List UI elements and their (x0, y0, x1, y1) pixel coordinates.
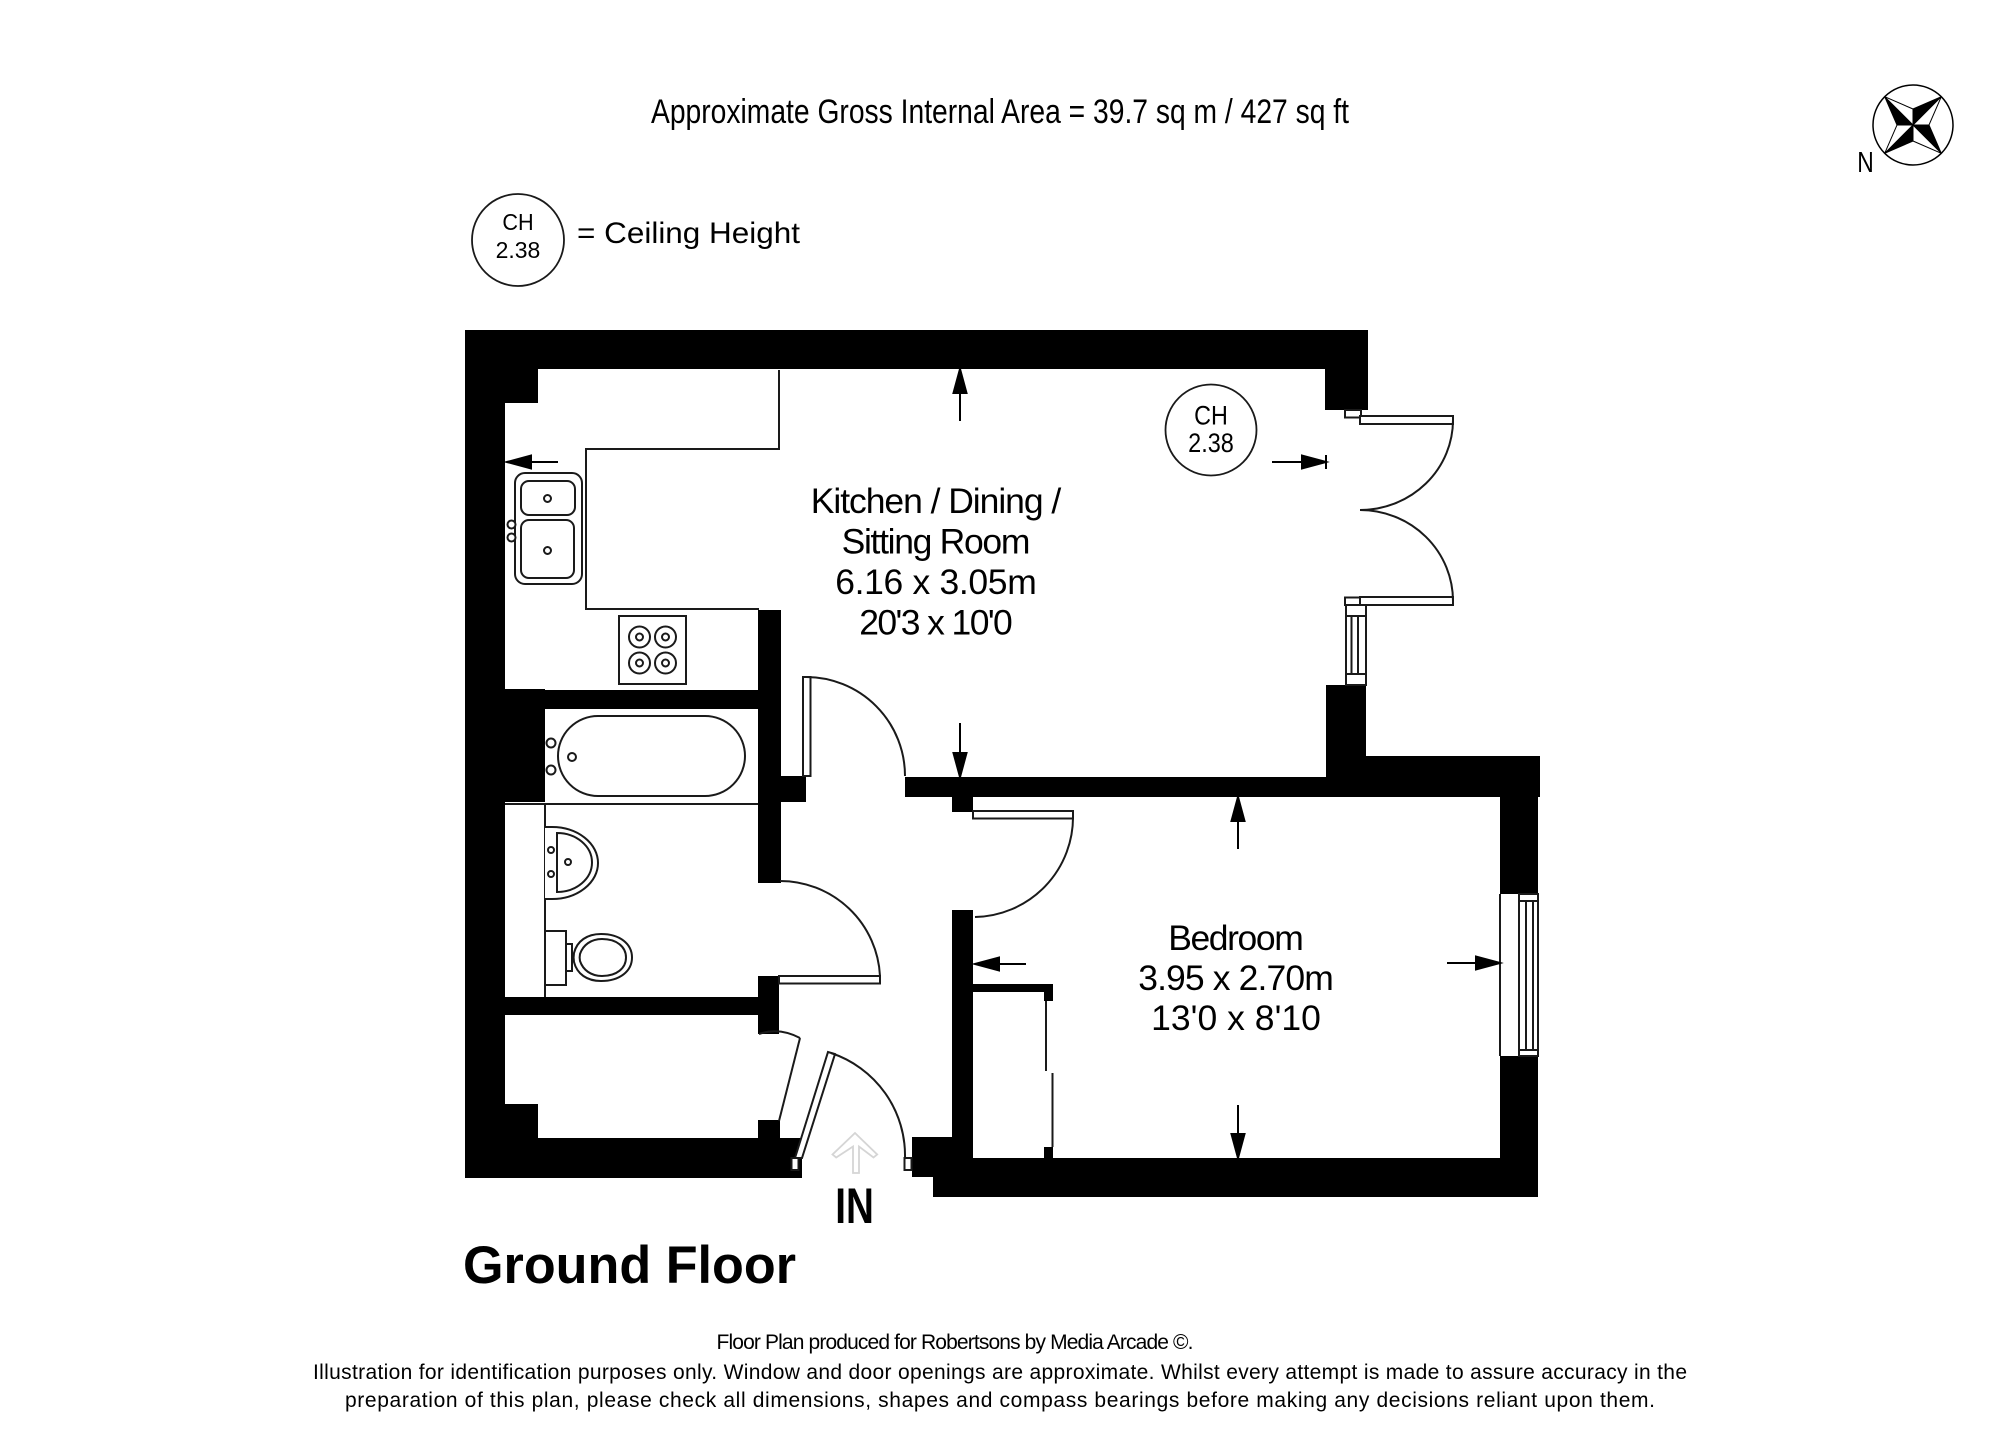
svg-text:13'0 x 8'10: 13'0 x 8'10 (1151, 998, 1321, 1038)
svg-text:N: N (1857, 147, 1874, 179)
svg-text:3.95 x 2.70m: 3.95 x 2.70m (1138, 958, 1334, 998)
svg-text:preparation of this plan, plea: preparation of this plan, please check a… (345, 1389, 1655, 1412)
svg-text:CH: CH (1194, 401, 1228, 431)
svg-text:Kitchen / Dining /: Kitchen / Dining / (811, 481, 1062, 521)
svg-text:Illustration for identificatio: Illustration for identification purposes… (313, 1361, 1687, 1384)
svg-text:6.16 x 3.05m: 6.16 x 3.05m (835, 562, 1037, 602)
svg-text:Bedroom: Bedroom (1168, 918, 1304, 958)
svg-text:= Ceiling Height: = Ceiling Height (577, 217, 801, 250)
svg-text:2.38: 2.38 (1188, 428, 1234, 458)
svg-text:Approximate Gross Internal Are: Approximate Gross Internal Area = 39.7 s… (651, 93, 1349, 131)
svg-text:20'3 x 10'0: 20'3 x 10'0 (859, 603, 1013, 643)
svg-text:2.38: 2.38 (496, 237, 541, 263)
svg-text:IN: IN (835, 1178, 874, 1234)
svg-text:Sitting Room: Sitting Room (842, 522, 1031, 562)
svg-text:CH: CH (502, 209, 533, 235)
svg-text:Ground Floor: Ground Floor (463, 1236, 796, 1295)
svg-text:Floor Plan produced for Robert: Floor Plan produced for Robertsons by Me… (717, 1331, 1194, 1354)
